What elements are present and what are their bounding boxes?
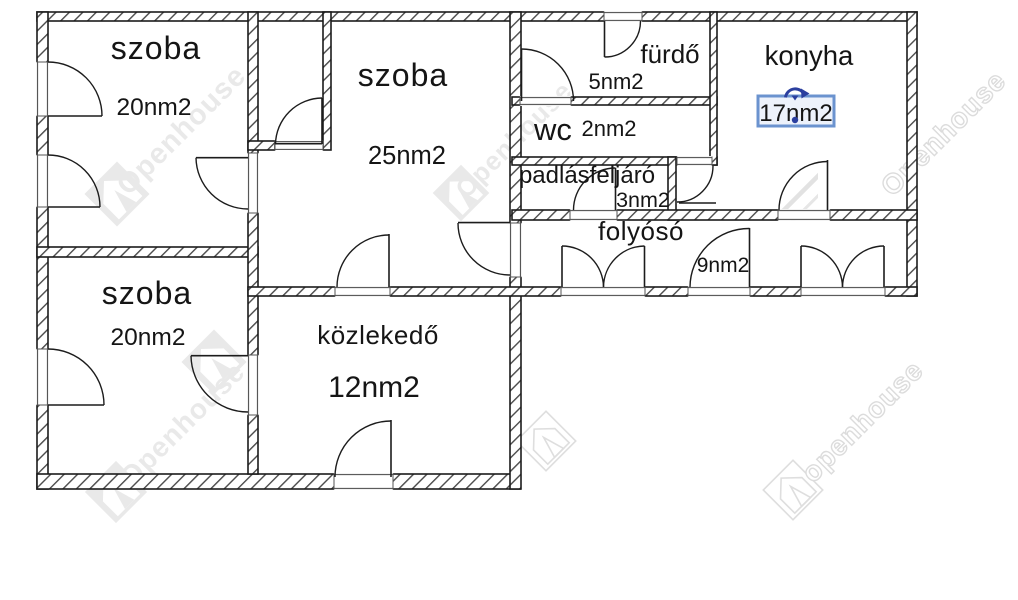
svg-text:szoba: szoba [358, 57, 448, 93]
svg-text:konyha: konyha [765, 40, 854, 71]
svg-text:12nm2: 12nm2 [328, 371, 420, 404]
svg-text:fürdő: fürdő [640, 39, 699, 69]
svg-text:wc: wc [533, 112, 572, 147]
svg-text:szoba: szoba [102, 275, 192, 311]
svg-text:25nm2: 25nm2 [368, 142, 446, 170]
svg-text:folyósó: folyósó [598, 216, 684, 246]
svg-text:3nm2: 3nm2 [616, 188, 670, 212]
svg-text:9nm2: 9nm2 [697, 254, 750, 277]
svg-text:20nm2: 20nm2 [117, 94, 192, 121]
svg-text:padlásfeljáró: padlásfeljáró [519, 162, 655, 189]
svg-text:5nm2: 5nm2 [588, 69, 643, 94]
svg-text:szoba: szoba [111, 30, 201, 66]
svg-text:2nm2: 2nm2 [581, 116, 636, 141]
svg-text:20nm2: 20nm2 [111, 324, 186, 351]
svg-text:közlekedő: közlekedő [317, 320, 439, 350]
